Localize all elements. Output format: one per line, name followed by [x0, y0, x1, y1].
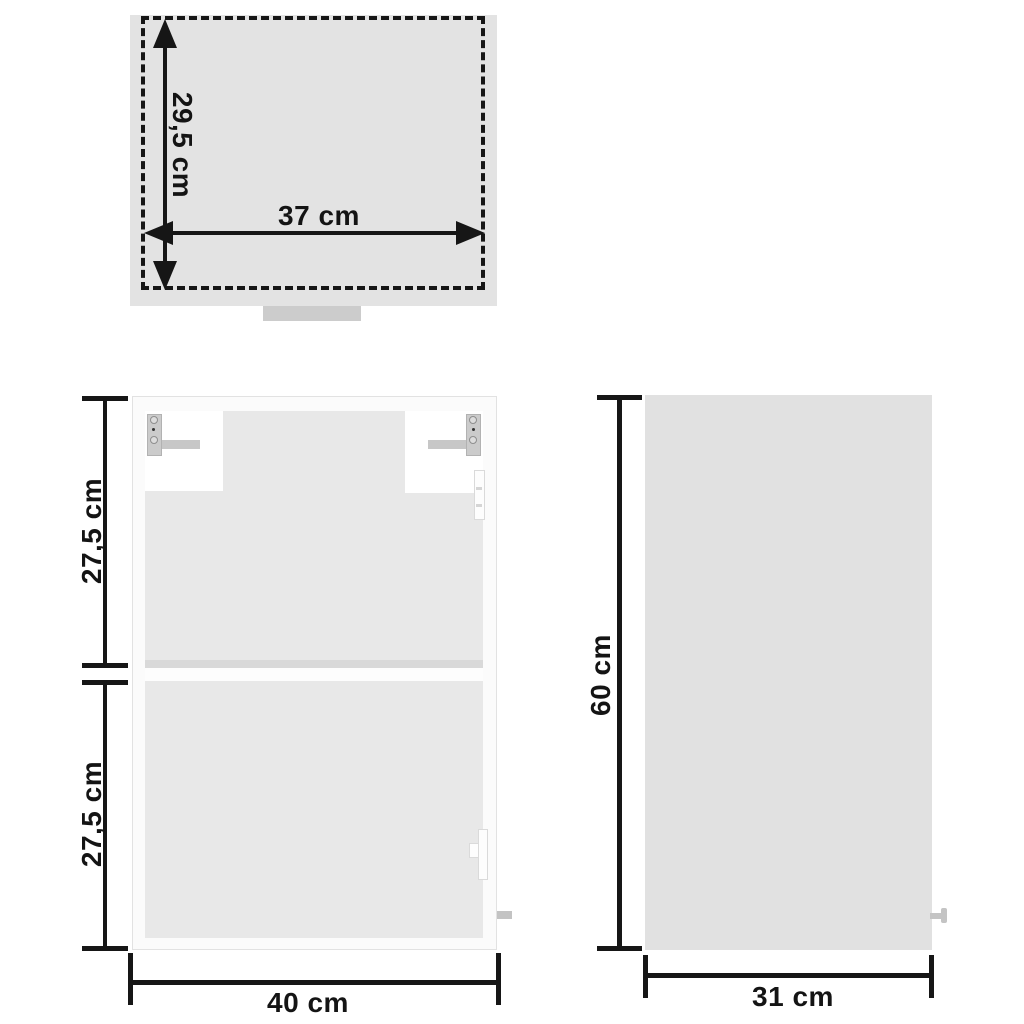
- shelf: [145, 668, 483, 681]
- screw-icon: [150, 416, 158, 424]
- side-height-label: 60 cm: [587, 634, 615, 716]
- front-handle: [497, 911, 512, 919]
- screw-icon: [469, 416, 477, 424]
- top-view-handle-tab: [263, 306, 361, 321]
- hinge-right-dot: [472, 428, 475, 431]
- hinge-right-arm: [428, 440, 466, 449]
- hinge-left-arm: [162, 440, 200, 449]
- arrowhead-left-icon: [144, 221, 173, 245]
- arrowhead-right-icon: [456, 221, 485, 245]
- product-dimension-diagram: 29,5 cm 37 cm 27,5 cm 27,5 cm: [0, 0, 1024, 1024]
- shelf-pin-hole: [432, 452, 454, 460]
- side-handle-cap: [941, 908, 947, 923]
- side-depth-label: 31 cm: [752, 983, 834, 1011]
- arrowhead-up-icon: [153, 19, 177, 48]
- door-plate-lower-tab: [469, 843, 479, 858]
- shelf-pin-hole: [176, 452, 198, 460]
- screw-icon: [150, 436, 158, 444]
- door-plate-upper-mark: [476, 504, 482, 507]
- hinge-left-dot: [152, 428, 155, 431]
- top-view-width-label: 37 cm: [278, 202, 360, 230]
- shelf-shadow: [145, 660, 483, 668]
- front-upper-height-label: 27,5 cm: [78, 478, 106, 584]
- arrowhead-down-icon: [153, 261, 177, 290]
- front-lower-height-label: 27,5 cm: [78, 761, 106, 867]
- door-plate-upper-mark: [476, 487, 482, 490]
- shelf-pin-hole: [462, 461, 479, 468]
- door-plate-upper: [474, 470, 485, 520]
- screw-icon: [469, 436, 477, 444]
- top-view-depth-label: 29,5 cm: [168, 92, 196, 198]
- door-plate-lower: [478, 829, 488, 880]
- shelf-pin-hole: [149, 461, 166, 468]
- side-panel: [645, 395, 932, 950]
- front-width-label: 40 cm: [267, 989, 349, 1017]
